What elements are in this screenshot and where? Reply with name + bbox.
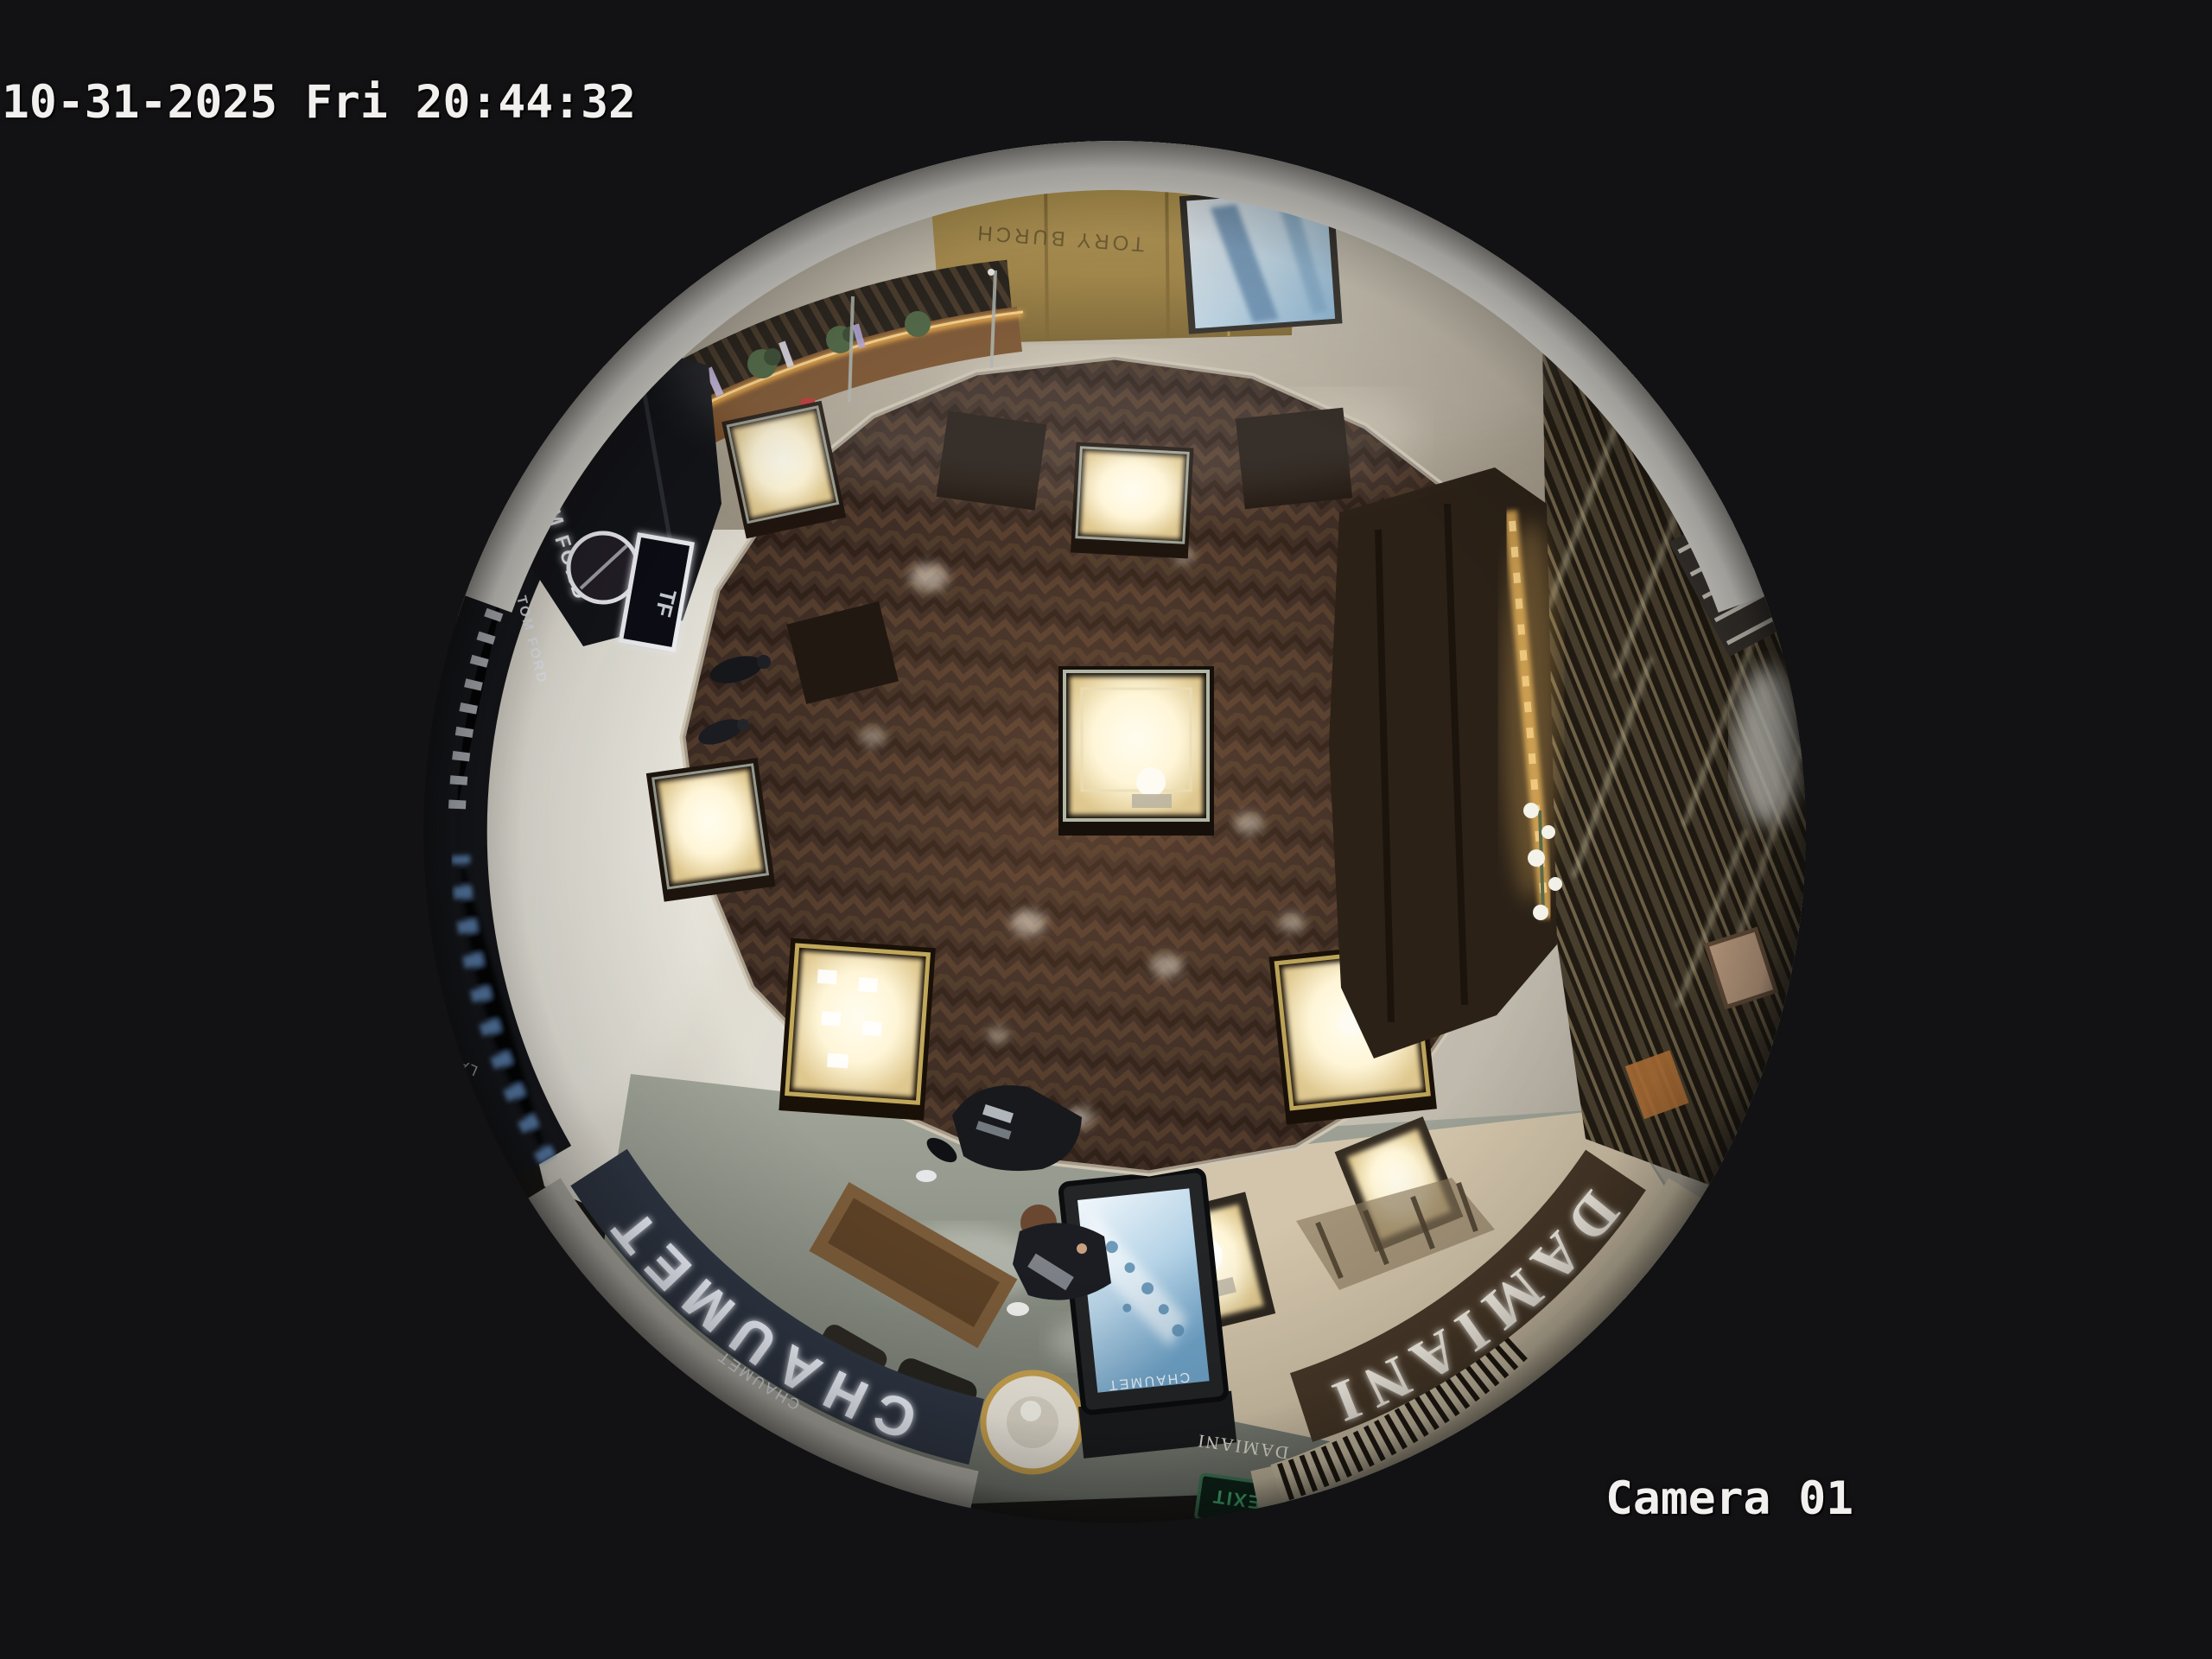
fisheye-vignette: [423, 141, 1806, 1523]
fisheye-clip-group: TORY BURCH: [423, 141, 1806, 1523]
osd-timestamp: 10-31-2025 Fri 20:44:32: [2, 76, 636, 129]
fisheye-camera-view: TORY BURCH: [423, 141, 1806, 1523]
osd-camera-label: Camera 01: [1605, 1472, 1853, 1525]
fisheye-scene: TORY BURCH: [423, 141, 1806, 1523]
